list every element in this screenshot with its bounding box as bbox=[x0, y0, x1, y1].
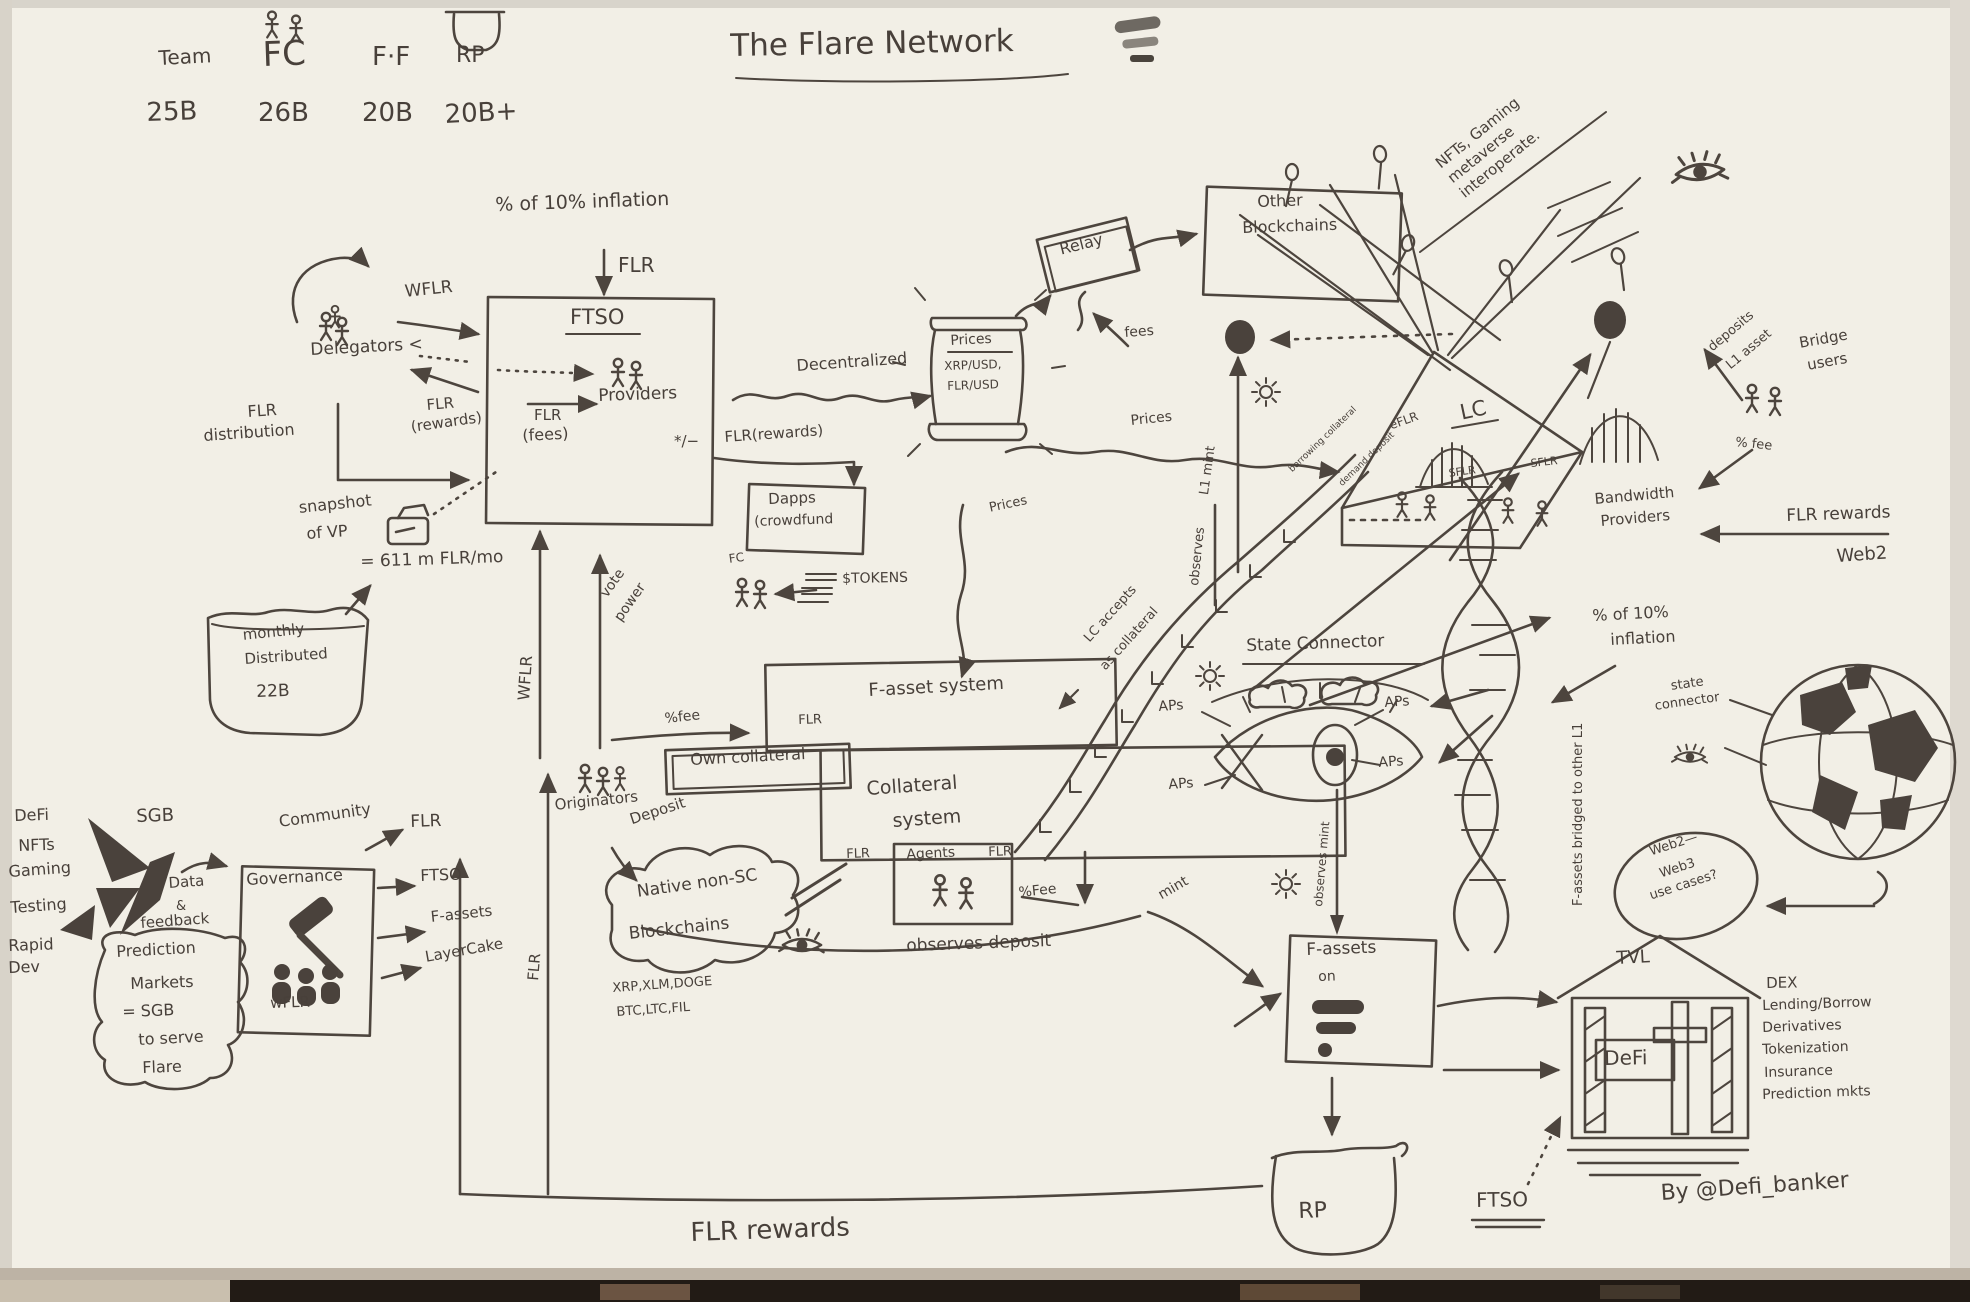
relay-to-chains-arrow bbox=[1130, 234, 1196, 250]
web2-web3-oval bbox=[1605, 820, 1887, 952]
defi-sign-label: DeFi bbox=[1604, 1047, 1648, 1069]
scroll-to-relay-arrow bbox=[1016, 296, 1050, 316]
scroll-prices-label: Prices bbox=[950, 332, 992, 349]
inflation-right-arrow bbox=[1553, 666, 1615, 702]
ftso-fees-label: (fees) bbox=[522, 426, 569, 445]
delegators-dotted-line bbox=[420, 356, 470, 362]
wflr-vertical-label: WFLR bbox=[516, 655, 536, 701]
fassets-box-label1: F-assets bbox=[1306, 940, 1377, 960]
data-feedback-arrow bbox=[182, 863, 226, 872]
bridge-fee-arrow bbox=[1700, 450, 1752, 488]
ftso-bottom-underline bbox=[1472, 1220, 1544, 1227]
whiteboard-photo: { "ink": "#4a423c", "header": { "team": … bbox=[0, 0, 1970, 1302]
l1-mint-arrow bbox=[1215, 358, 1238, 605]
inflation-flr-label: FLR bbox=[618, 255, 655, 276]
prediction-label2: Markets bbox=[130, 974, 194, 993]
flr-vertical-label: FLR bbox=[526, 953, 544, 982]
fees-bent-arrow bbox=[1094, 314, 1128, 346]
bottom-flow-line bbox=[460, 775, 1262, 1200]
marker-smudge bbox=[1114, 16, 1161, 62]
tokens-label: $TOKENS bbox=[842, 571, 908, 587]
sflr-label2: SFLR bbox=[1530, 455, 1558, 469]
lc-title: LC bbox=[1458, 397, 1488, 424]
data-label: Data bbox=[168, 874, 205, 892]
state-connector-group bbox=[1196, 662, 1428, 801]
web2-globe bbox=[1761, 665, 1955, 859]
agents-label: Agents bbox=[906, 845, 955, 862]
dex-list-item5: Insurance bbox=[1764, 1064, 1833, 1081]
fc-label: FC bbox=[262, 36, 307, 73]
gov-arrow-ftso: FTSO bbox=[420, 867, 462, 885]
mint-curve-arrow bbox=[1148, 912, 1262, 986]
ftso-bottom-label: FTSO bbox=[1476, 1189, 1528, 1211]
wflr-in-arrow bbox=[398, 322, 478, 334]
relay-fees-label: fees bbox=[1124, 324, 1154, 341]
aps-label-3: APs bbox=[1384, 694, 1410, 710]
collateral-river bbox=[1015, 455, 1368, 860]
gov-arrow-flr: FLR bbox=[410, 813, 442, 832]
tvl-label: TVL bbox=[1616, 948, 1650, 969]
snapshot-camera-icon bbox=[388, 472, 496, 544]
prices-scroll bbox=[893, 288, 1065, 456]
ff-value: 20B bbox=[362, 100, 413, 127]
inflation-right-label2: inflation bbox=[1610, 629, 1676, 649]
node2-stalk bbox=[1588, 342, 1610, 398]
dex-list-item1: DEX bbox=[1766, 975, 1798, 991]
rp-value: 20B+ bbox=[444, 98, 518, 129]
prediction-label5: Flare bbox=[142, 1059, 182, 1077]
prices-wavy-down bbox=[958, 505, 965, 676]
prediction-label3: = SGB bbox=[122, 1002, 175, 1021]
collateral-flr-right: FLR bbox=[988, 845, 1012, 859]
ftso-box bbox=[486, 297, 714, 525]
rp-bucket bbox=[1272, 1143, 1407, 1254]
title-underline bbox=[736, 74, 1068, 81]
mint-eye-sun-icon bbox=[1252, 378, 1280, 406]
prediction-label4: to serve bbox=[138, 1029, 204, 1049]
fasset-flr-label: FLR bbox=[798, 713, 822, 727]
scroll-pair1-label: XRP/USD, bbox=[944, 358, 1002, 373]
team-value: 25B bbox=[146, 98, 198, 127]
dapps-label2: (crowdfund bbox=[754, 512, 834, 529]
helix-label: F-assets bridged to other L1 bbox=[1572, 723, 1586, 906]
left-item-dev: Dev bbox=[8, 959, 40, 977]
ftso-flr-label: FLR bbox=[534, 408, 561, 424]
providers-label: Providers bbox=[598, 385, 677, 406]
fassets-to-defi-arrows bbox=[1438, 998, 1558, 1070]
other-chains-label1: Other bbox=[1257, 192, 1303, 210]
bridge-users-figures bbox=[1746, 385, 1781, 415]
aps-label-1: APs bbox=[1158, 698, 1184, 714]
gov-wflr-label: wFLR bbox=[270, 995, 310, 1012]
fc-value: 26B bbox=[258, 100, 309, 127]
rewards-out-arrow bbox=[714, 458, 854, 484]
team-label: Team bbox=[158, 45, 212, 69]
ftso-pm-label: */− bbox=[674, 434, 699, 450]
flr-rewards-bottom-label: FLR rewards bbox=[690, 1214, 850, 1247]
other-chains-label2: Blockchains bbox=[1242, 217, 1337, 237]
observes-mint-line bbox=[1272, 790, 1344, 935]
defi-building bbox=[1558, 936, 1760, 1175]
rewards-to-delegators-arrow bbox=[412, 370, 478, 392]
small-state-connector-eye bbox=[1672, 700, 1772, 765]
rp-bucket-label: RP bbox=[1298, 1199, 1327, 1223]
observing-eye-icon bbox=[1548, 150, 1728, 262]
decentralized-wavy-arrow bbox=[733, 394, 930, 401]
ftso-title: FTSO bbox=[570, 306, 624, 328]
dapps-label1: Dapps bbox=[768, 490, 816, 507]
native-cloud bbox=[606, 846, 846, 972]
left-item-nfts: NFTs bbox=[18, 837, 55, 855]
fassets-in-arrow bbox=[1235, 994, 1280, 1026]
community-arrow bbox=[366, 830, 402, 850]
collateral-flr-left: FLR bbox=[846, 847, 870, 861]
aps-label-4: APs bbox=[1378, 754, 1404, 770]
dex-list-item4: Tokenization bbox=[1762, 1040, 1849, 1058]
ff-label: F·F bbox=[372, 44, 410, 71]
delegator-cycle-arrow bbox=[293, 258, 368, 345]
left-item-defi: DeFi bbox=[14, 807, 49, 825]
fasset-helix bbox=[1442, 472, 1519, 952]
sgb-label: SGB bbox=[136, 807, 174, 827]
fassets-box-label2: on bbox=[1318, 969, 1336, 984]
validator-node-dark bbox=[1225, 301, 1626, 354]
flr-distribution-label1: FLR bbox=[247, 402, 277, 421]
snapshot-label2: of VP bbox=[306, 523, 348, 543]
ftso-dotted-line bbox=[1528, 1118, 1560, 1184]
fasset-fee-arrow bbox=[612, 733, 748, 740]
rp-label: RP bbox=[456, 44, 485, 67]
web2-label: Web2 bbox=[1836, 544, 1888, 566]
dapps-fc-label: FC bbox=[728, 551, 745, 566]
flr-rewards-right-label: FLR rewards bbox=[1786, 504, 1891, 525]
scroll-pair2-label: FLR/USD bbox=[947, 378, 999, 392]
lc-radiating-lines bbox=[1258, 175, 1640, 358]
aps-label-2: APs bbox=[1168, 776, 1194, 792]
left-item-rapid: Rapid bbox=[8, 936, 54, 954]
governance-out-arrows bbox=[378, 886, 424, 978]
page-title: The Flare Network bbox=[730, 25, 1014, 62]
dex-list-item3: Derivatives bbox=[1762, 1018, 1842, 1035]
bucket-label3: 22B bbox=[256, 683, 290, 702]
rewards-flr-label: FLR bbox=[426, 396, 455, 414]
